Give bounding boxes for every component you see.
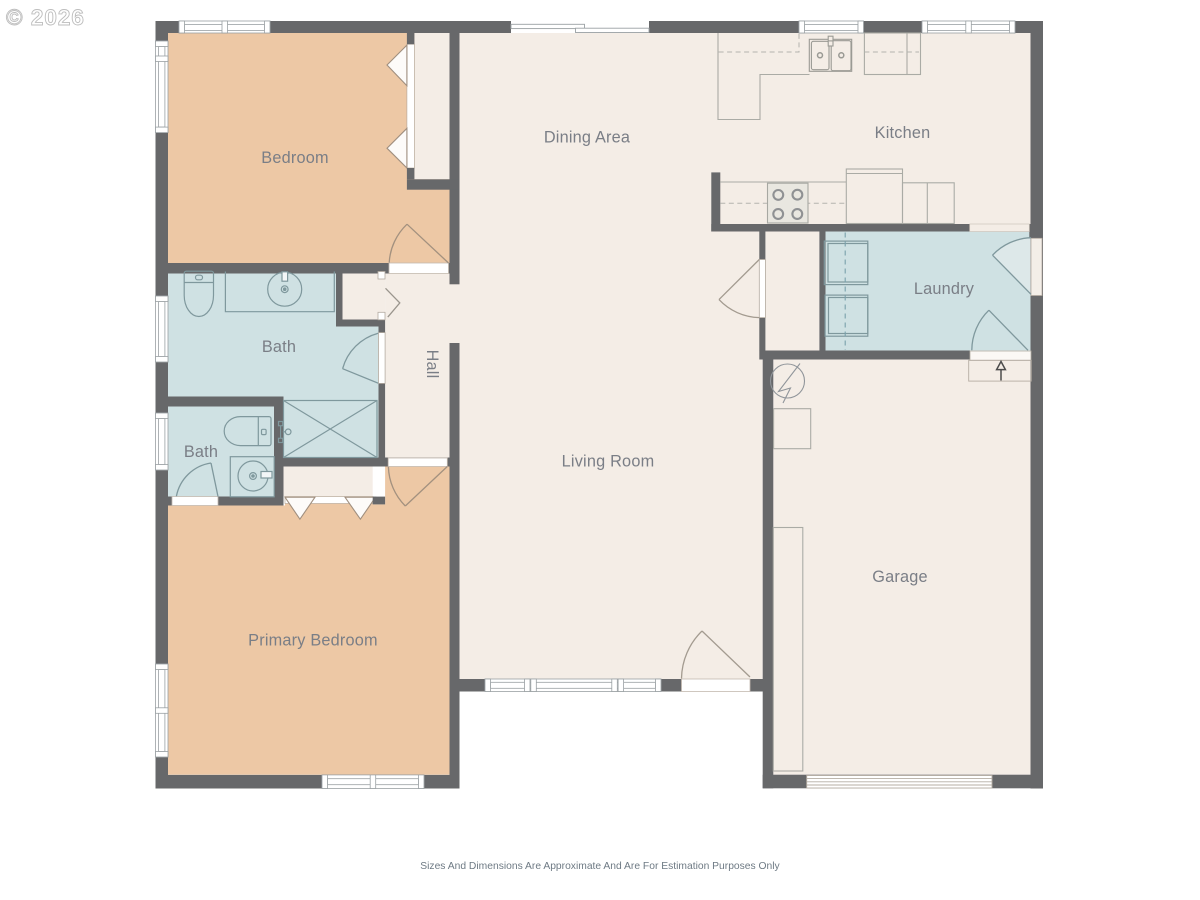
svg-text:Bedroom: Bedroom: [261, 149, 328, 167]
svg-text:Bath: Bath: [262, 338, 296, 356]
svg-text:Primary Bedroom: Primary Bedroom: [248, 632, 378, 650]
svg-text:Laundry: Laundry: [914, 280, 975, 298]
svg-text:Bath: Bath: [184, 443, 218, 461]
svg-text:Living Room: Living Room: [562, 453, 655, 471]
svg-text:Kitchen: Kitchen: [875, 124, 931, 142]
svg-text:Garage: Garage: [872, 568, 928, 586]
svg-text:Hall: Hall: [423, 350, 441, 379]
svg-text:Dining Area: Dining Area: [544, 129, 631, 147]
